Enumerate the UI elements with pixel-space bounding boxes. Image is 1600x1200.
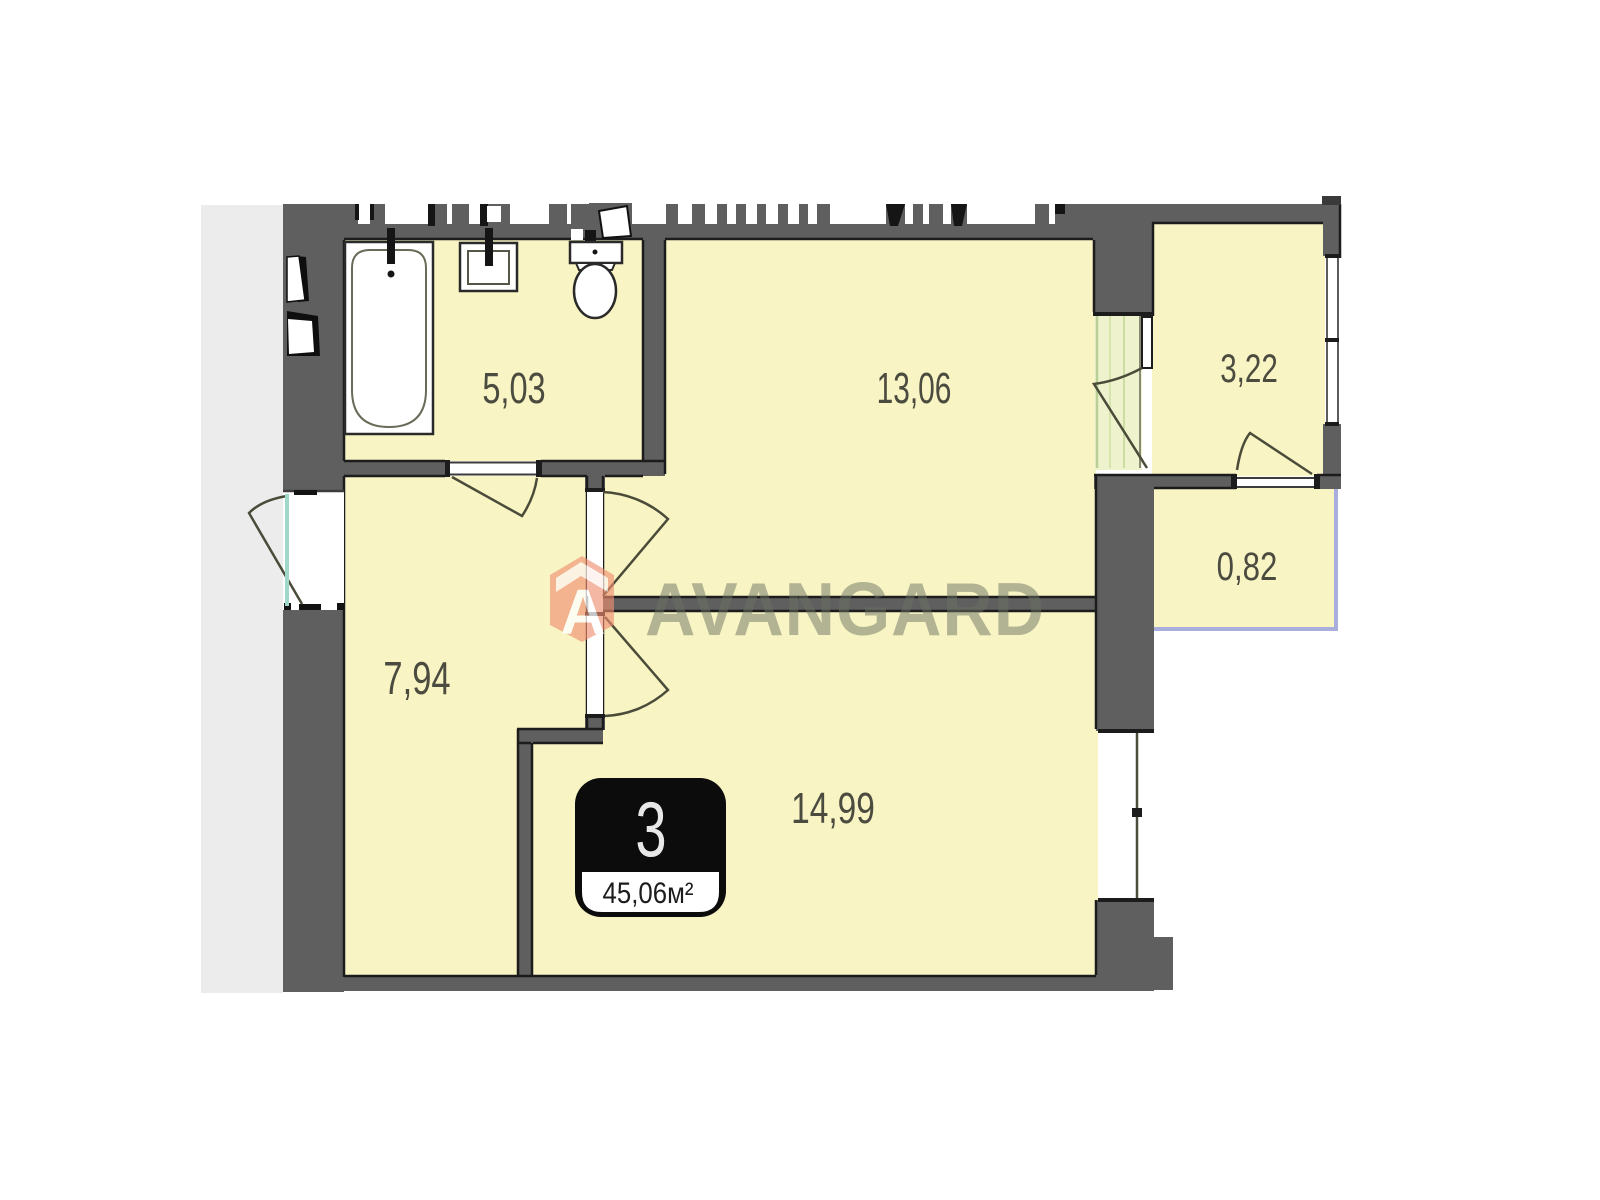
svg-text:A: A <box>560 577 605 648</box>
svg-text:5,03: 5,03 <box>482 364 545 413</box>
svg-text:7,94: 7,94 <box>383 652 450 704</box>
svg-text:13,06: 13,06 <box>877 363 952 412</box>
svg-text:3,22: 3,22 <box>1220 347 1278 391</box>
svg-text:45,06м²: 45,06м² <box>603 876 694 909</box>
svg-text:3: 3 <box>635 786 666 873</box>
svg-text:AVANGARD: AVANGARD <box>645 568 1045 652</box>
svg-text:14,99: 14,99 <box>791 785 875 833</box>
svg-text:0,82: 0,82 <box>1217 544 1278 589</box>
